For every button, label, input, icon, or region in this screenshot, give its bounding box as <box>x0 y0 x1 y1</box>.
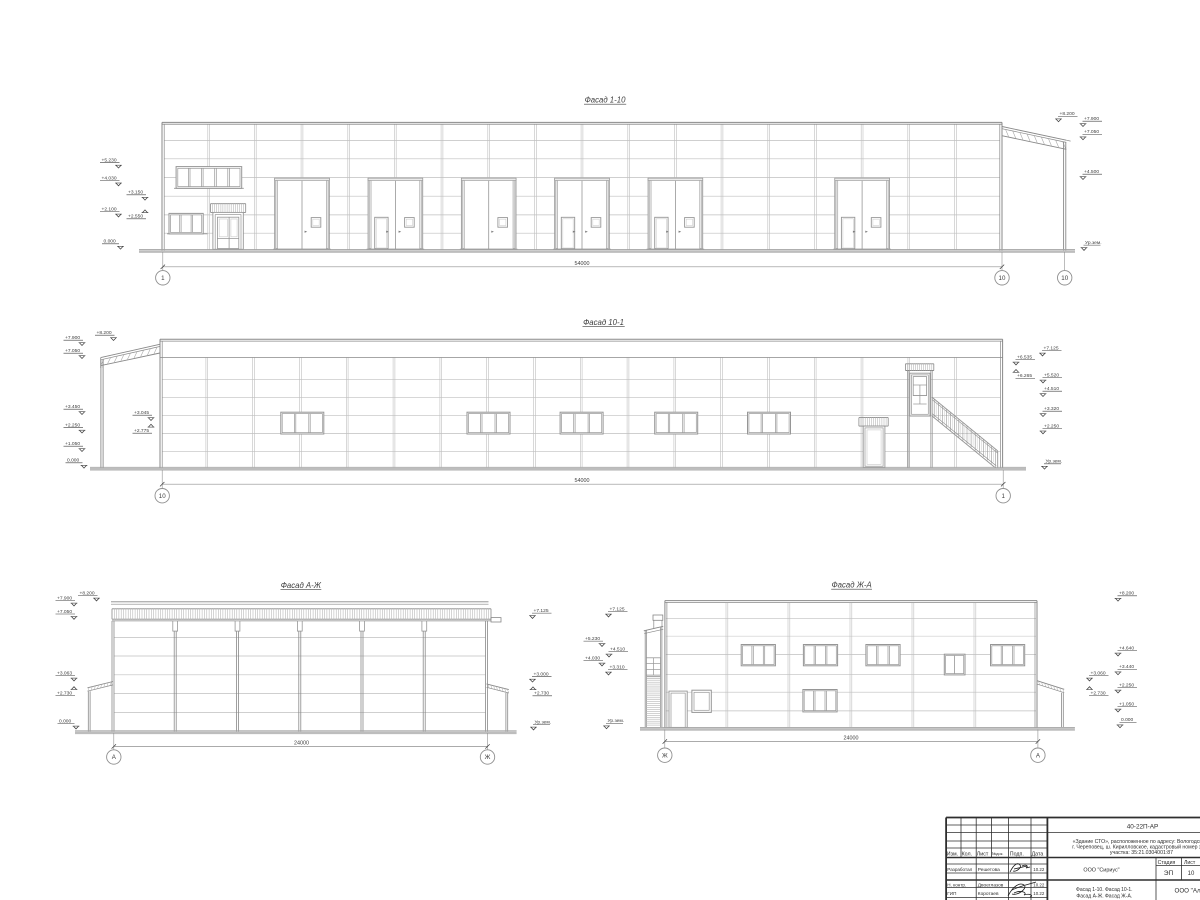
svg-text:1: 1 <box>1001 493 1005 500</box>
svg-text:Подп.: Подп. <box>1010 852 1024 858</box>
svg-text:Фасад 1-10: Фасад 1-10 <box>585 96 627 105</box>
svg-text:ООО "Ал: ООО "Ал <box>1175 888 1200 895</box>
svg-text:Фасад 10-1: Фасад 10-1 <box>583 318 624 327</box>
svg-text:Лист: Лист <box>977 852 989 858</box>
svg-text:10.22: 10.22 <box>1033 882 1045 887</box>
svg-text:24000: 24000 <box>294 740 309 746</box>
svg-text:Лист: Лист <box>1184 860 1196 866</box>
svg-text:Фасад Ж-А: Фасад Ж-А <box>831 581 871 590</box>
svg-text:ООО "Сириус": ООО "Сириус" <box>1083 868 1119 874</box>
svg-text:участка: 35:21.0304001:87: участка: 35:21.0304001:87 <box>1110 850 1173 856</box>
svg-text:Коротаев: Коротаев <box>978 891 999 897</box>
svg-text:54000: 54000 <box>575 478 590 484</box>
svg-text:40-22П-АР: 40-22П-АР <box>1127 824 1159 831</box>
svg-text:Стадия: Стадия <box>1158 860 1176 866</box>
svg-text:10: 10 <box>1061 275 1068 282</box>
svg-text:10.22: 10.22 <box>1033 891 1045 896</box>
svg-text:Двоеглазов: Двоеглазов <box>978 882 1004 888</box>
svg-text:54000: 54000 <box>575 261 590 267</box>
svg-text:10: 10 <box>999 275 1006 282</box>
svg-text:10.22: 10.22 <box>1033 867 1045 872</box>
svg-text:Фасад А-Ж: Фасад А-Ж <box>281 581 322 590</box>
svg-text:24000: 24000 <box>844 736 859 742</box>
svg-text:ГИП: ГИП <box>947 891 956 896</box>
svg-text:Дата: Дата <box>1032 852 1044 858</box>
svg-text:Ж: Ж <box>662 752 668 759</box>
svg-text:Ж: Ж <box>485 754 491 761</box>
svg-text:Кол.: Кол. <box>962 852 972 858</box>
svg-text:№док.: №док. <box>992 851 1004 856</box>
svg-text:Решетова: Решетова <box>978 867 1000 873</box>
svg-text:Изм.: Изм. <box>947 852 958 858</box>
svg-text:Н. контр.: Н. контр. <box>947 882 966 887</box>
svg-text:Фасад А-Ж. Фасад Ж-А.: Фасад А-Ж. Фасад Ж-А. <box>1076 894 1132 900</box>
svg-text:1: 1 <box>161 275 165 282</box>
svg-text:10: 10 <box>1188 871 1195 877</box>
svg-text:Фасад 1-10. Фасад 10-1.: Фасад 1-10. Фасад 10-1. <box>1076 887 1133 893</box>
svg-text:Разработал: Разработал <box>947 867 972 872</box>
svg-text:10: 10 <box>159 493 166 500</box>
svg-text:ЭП: ЭП <box>1164 870 1174 877</box>
